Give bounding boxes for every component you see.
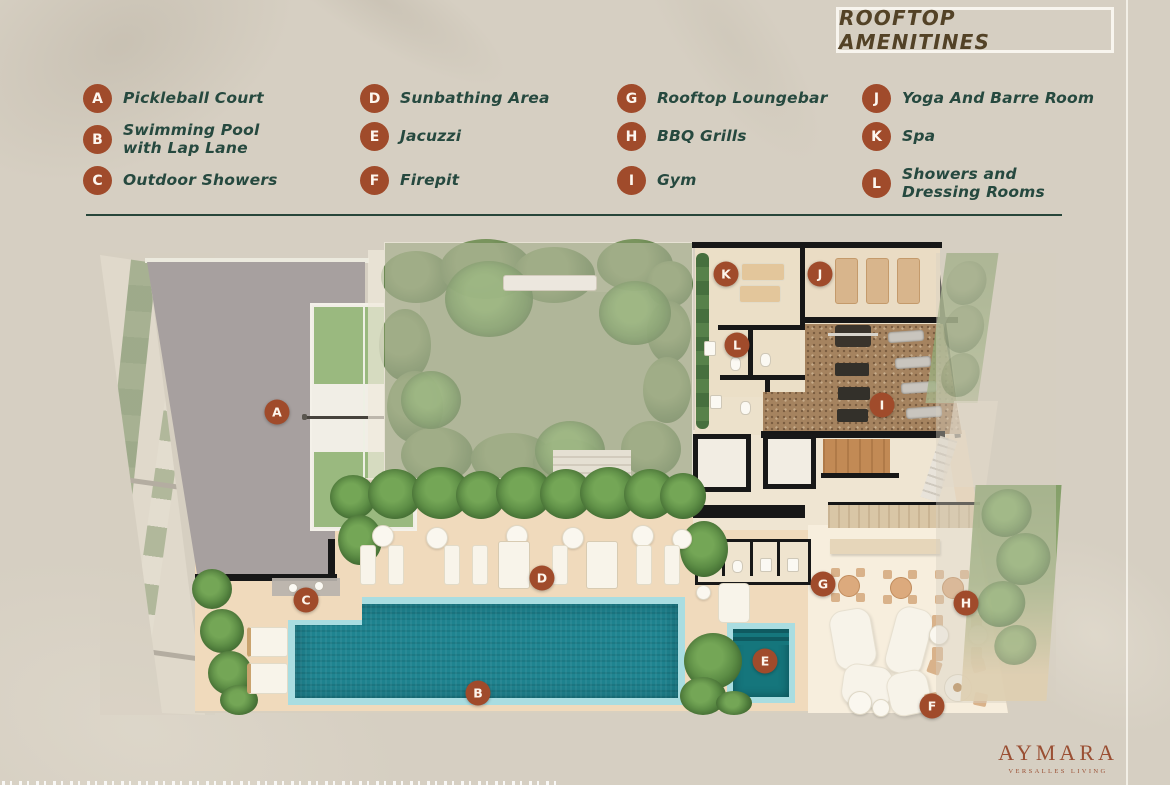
floor-plan: ABCDEFGHIJKL [100,237,1070,715]
legend-item-a: APickleball Court [83,84,264,113]
plan-marker-f: F [920,694,945,719]
legend-item-d: DSunbathing Area [360,84,550,113]
sun-lounger [360,545,376,585]
spa-lounger [741,263,785,281]
plan-marker-k: K [714,262,739,287]
sun-lounger [636,545,652,585]
east-garden-lower [960,485,1061,701]
court-east-wall [328,539,335,581]
toilet [760,353,771,367]
legend-label: Showers and Dressing Rooms [902,166,1045,202]
legend-badge-g: G [617,84,646,113]
plan-marker-j: J [808,262,833,287]
legend-label: Yoga And Barre Room [902,90,1094,108]
plan-marker-l: L [725,333,750,358]
legend-badge-f: F [360,166,389,195]
sun-umbrella [372,525,394,547]
toilet [730,357,741,371]
legend-badge-e: E [360,122,389,151]
legend-divider [86,214,1062,216]
barbell [828,333,878,336]
rooftop-amenities-flyer: ROOFTOP AMENITINES APickleball CourtBSwi… [0,0,1170,785]
legend-badge-b: B [83,125,112,154]
legend-item-f: FFirepit [360,166,459,195]
plan-marker-e: E [753,649,778,674]
plan-marker-h: H [954,591,979,616]
towel-station [718,583,750,623]
yoga-mat [835,258,858,304]
legend-label: Gym [657,172,697,190]
elevator-shaft [763,434,816,489]
legend-label: Jacuzzi [400,128,461,146]
legend-label: BBQ Grills [657,128,747,146]
washbasin [710,395,722,409]
plan-marker-g: G [811,572,836,597]
legend-badge-l: L [862,169,891,198]
legend-item-i: IGym [617,166,697,195]
legend-label: Firepit [400,172,459,190]
garden-bench [503,275,597,291]
washbasin [787,558,799,572]
shower-head [314,581,324,591]
sun-umbrella [632,525,654,547]
brand-name: AYMARA [998,740,1118,766]
sun-lounger [472,545,488,585]
dumbbell-rack [838,387,870,400]
legend-column-4: JYoga And Barre RoomKSpaLShowers and Dre… [862,84,1132,214]
legend-item-j: JYoga And Barre Room [862,84,1094,113]
yoga-mat [897,258,920,304]
legend-item-b: BSwimming Pool with Lap Lane [83,122,260,158]
legend: APickleball CourtBSwimming Pool with Lap… [0,0,1170,215]
toilet [732,560,743,573]
legend-badge-i: I [617,166,646,195]
plan-marker-d: D [530,566,555,591]
garden [385,243,692,484]
sun-lounger [444,545,460,585]
dumbbell-rack [837,409,868,422]
legend-item-h: HBBQ Grills [617,122,747,151]
sun-lounger [388,545,404,585]
storage-room [823,439,890,475]
bar-counter [828,502,980,528]
legend-label: Swimming Pool with Lap Lane [123,122,260,158]
legend-label: Spa [902,128,935,146]
legend-badge-d: D [360,84,389,113]
sun-lounger [664,545,680,585]
daybed [247,663,288,694]
clipped-footer-text [2,781,562,785]
legend-item-c: COutdoor Showers [83,166,278,195]
legend-column-3: GRooftop LoungebarHBBQ GrillsIGym [617,84,887,214]
plan-marker-i: I [870,393,895,418]
legend-label: Outdoor Showers [123,172,278,190]
bbq-umbrella [929,625,949,645]
weight-bench [835,325,871,347]
legend-item-g: GRooftop Loungebar [617,84,828,113]
sun-daybed [498,541,530,589]
loungebar-wall [693,505,805,518]
legend-badge-a: A [83,84,112,113]
washbasin [704,341,716,356]
yoga-mat [866,258,889,304]
legend-badge-c: C [83,166,112,195]
spa-lounger [739,285,781,303]
plan-marker-c: C [294,588,319,613]
legend-badge-j: J [862,84,891,113]
buffet-table [830,539,940,554]
toilet [740,401,751,415]
legend-item-k: KSpa [862,122,935,151]
legend-badge-h: H [617,122,646,151]
legend-item-l: LShowers and Dressing Rooms [862,166,1045,202]
washbasin [760,558,772,572]
plan-marker-a: A [265,400,290,425]
plan-marker-b: B [466,681,491,706]
legend-badge-k: K [862,122,891,151]
brand-logo: AYMARA VERSALLES LIVING [998,740,1118,775]
legend-item-e: EJacuzzi [360,122,461,151]
legend-column-2: DSunbathing AreaEJacuzziFFirepit [360,84,630,214]
legend-column-1: APickleball CourtBSwimming Pool with Lap… [83,84,353,214]
daybed [247,627,288,657]
brand-tagline: VERSALLES LIVING [998,768,1118,775]
legend-label: Sunbathing Area [400,90,550,108]
dumbbell-rack [835,363,869,376]
legend-label: Pickleball Court [123,90,264,108]
legend-label: Rooftop Loungebar [657,90,828,108]
sun-daybed [586,541,618,589]
